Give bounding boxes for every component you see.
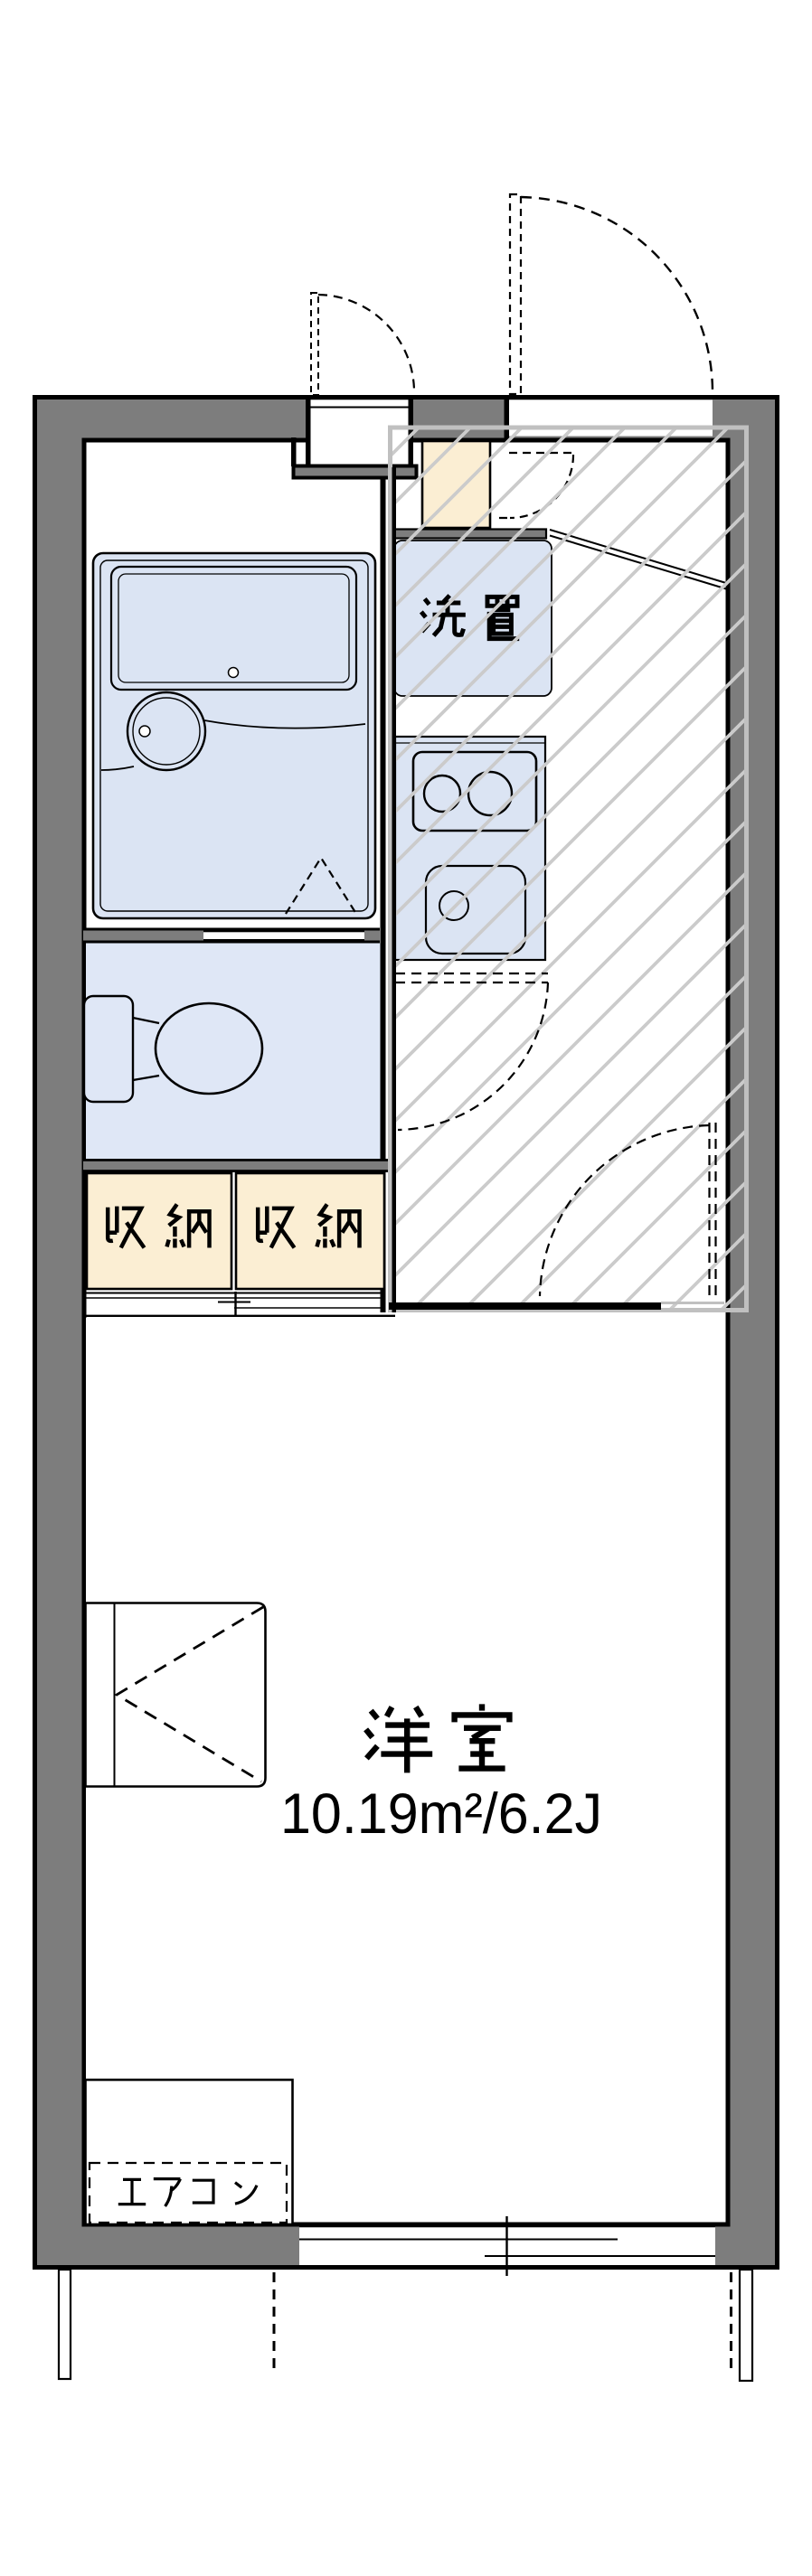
svg-text:10.19m²/6.2J: 10.19m²/6.2J xyxy=(280,1782,602,1846)
